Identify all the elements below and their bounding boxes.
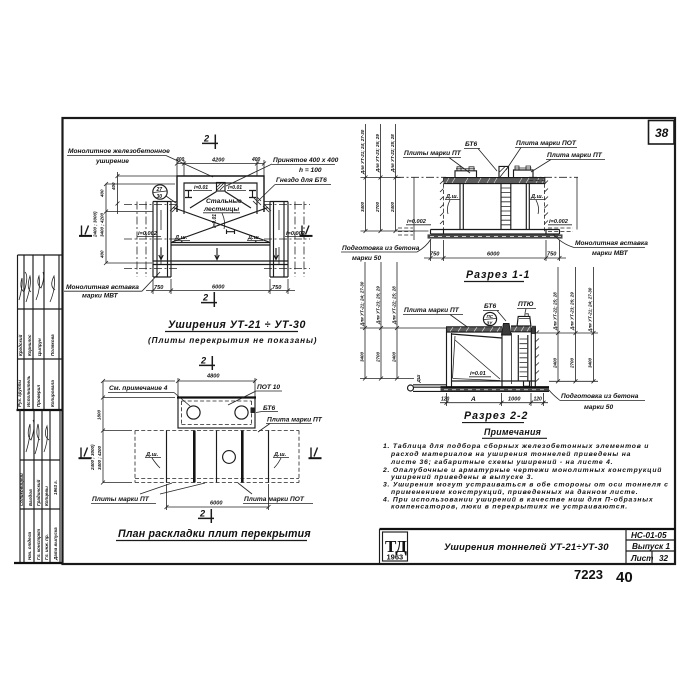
svg-text:ДШ: ДШ xyxy=(416,374,421,383)
svg-text:i=0.01: i=0.01 xyxy=(470,371,486,377)
svg-text:Плита марки ПТ: Плита марки ПТ xyxy=(547,152,603,159)
svg-text:Принятое 400 х 400: Принятое 400 х 400 xyxy=(273,157,339,164)
svg-text:Рук. группы: Рук. группы xyxy=(17,380,22,407)
svg-text:Гл. инж. пр.: Гл. инж. пр. xyxy=(44,534,49,560)
svg-text:Плита марки ПТ: Плита марки ПТ xyxy=(267,417,323,424)
svg-text:750: 750 xyxy=(154,285,164,291)
svg-text:38: 38 xyxy=(655,126,669,140)
svg-text:3400: 3400 xyxy=(588,357,593,368)
svg-text:400: 400 xyxy=(100,189,105,198)
svg-text:ЗУ: ЗУ xyxy=(487,321,494,326)
svg-text:лестницы: лестницы xyxy=(203,206,240,213)
svg-text:4. При использовании уширени: 4. При использовании уширений в качестве… xyxy=(382,496,654,504)
svg-text:Подготовка из бетона: Подготовка из бетона xyxy=(342,244,420,252)
svg-text:6000: 6000 xyxy=(210,501,223,507)
svg-text:1. Таблица для подбора сбор: 1. Таблица для подбора сборных железобет… xyxy=(383,442,649,450)
svg-text:Уширения УТ-21 ÷ УТ-30: Уширения УТ-21 ÷ УТ-30 xyxy=(168,319,306,331)
svg-text:БТ6: БТ6 xyxy=(465,141,477,148)
svg-text:Полякова: Полякова xyxy=(50,334,55,356)
svg-text:марки 50: марки 50 xyxy=(584,404,613,411)
svg-text:Соликовицкий: Соликовицкий xyxy=(18,473,24,506)
svg-text:марки МВТ: марки МВТ xyxy=(82,293,119,300)
svg-text:32: 32 xyxy=(659,554,669,563)
svg-text:ПС: ПС xyxy=(487,314,494,319)
svg-text:БТ6: БТ6 xyxy=(263,405,275,412)
svg-text:Плита марки ПТ: Плита марки ПТ xyxy=(404,307,460,314)
svg-text:Для УТ-21; 24; 27-30: Для УТ-21; 24; 27-30 xyxy=(588,287,593,333)
svg-text:Разрез 1-1: Разрез 1-1 xyxy=(466,269,530,281)
svg-text:См. примечание 4: См. примечание 4 xyxy=(109,385,168,392)
svg-text:1963 г.: 1963 г. xyxy=(53,480,58,495)
svg-text:4800: 4800 xyxy=(206,374,220,380)
svg-text:марки МВТ: марки МВТ xyxy=(592,250,629,257)
svg-text:расход материалов на уширен: расход материалов на уширения тоннелей п… xyxy=(390,450,631,458)
svg-text:Градинский: Градинский xyxy=(35,479,41,506)
svg-text:i=0.002: i=0.002 xyxy=(549,219,569,225)
svg-text:400: 400 xyxy=(111,182,116,191)
svg-text:1963: 1963 xyxy=(387,553,404,562)
svg-text:3400: 3400 xyxy=(360,201,365,212)
svg-text:Нач. отдела: Нач. отдела xyxy=(27,531,32,560)
svg-text:ПОТ 10: ПОТ 10 xyxy=(257,384,280,391)
svg-text:Для УТ-23; 26; 29: Для УТ-23; 26; 29 xyxy=(570,292,575,331)
svg-text:Разрез 2-2: Разрез 2-2 xyxy=(464,410,528,422)
svg-text:Для УТ-22; 25; 28: Для УТ-22; 25; 28 xyxy=(390,134,395,173)
svg-text:Выпуск 1: Выпуск 1 xyxy=(632,542,670,551)
svg-text:компенсаторов, люки в перек: компенсаторов, люки в перекрытиях не уст… xyxy=(391,504,628,511)
svg-text:1000: 1000 xyxy=(508,397,521,403)
svg-text:Балдов: Балдов xyxy=(28,489,33,506)
svg-text:Для УТ-22; 25; 28: Для УТ-22; 25; 28 xyxy=(392,286,397,325)
svg-text:750: 750 xyxy=(430,252,440,258)
svg-text:2400: 2400 xyxy=(392,351,397,363)
svg-text:Монолитная вставка: Монолитная вставка xyxy=(66,284,139,291)
svg-text:2: 2 xyxy=(202,293,209,303)
svg-text:750: 750 xyxy=(547,252,557,258)
svg-text:БТ6: БТ6 xyxy=(484,303,496,310)
svg-text:3400 ; 4200: 3400 ; 4200 xyxy=(97,445,102,470)
svg-text:2400: 2400 xyxy=(553,357,558,369)
svg-text:Кродский: Кродский xyxy=(17,334,23,356)
svg-text:h = 100: h = 100 xyxy=(299,167,322,174)
svg-text:400: 400 xyxy=(100,250,105,259)
svg-text:2: 2 xyxy=(199,509,206,519)
svg-text:марки 50: марки 50 xyxy=(352,255,381,262)
svg-text:6000: 6000 xyxy=(212,285,225,291)
svg-text:Проверил: Проверил xyxy=(36,385,41,407)
svg-text:уширение: уширение xyxy=(95,158,129,165)
svg-text:400: 400 xyxy=(175,157,185,163)
svg-text:2400 ; 3000): 2400 ; 3000) xyxy=(90,444,95,471)
svg-text:Плиты марки ПТ: Плиты марки ПТ xyxy=(92,496,150,503)
svg-text:Примечания: Примечания xyxy=(484,427,542,437)
svg-text:30: 30 xyxy=(157,194,163,200)
svg-text:применением конструкций, при: применением конструкций, приведенных на … xyxy=(391,488,638,496)
svg-text:120: 120 xyxy=(441,397,450,403)
svg-text:2400: 2400 xyxy=(390,201,395,213)
svg-text:3. Уширения могут устраивать: 3. Уширения могут устраиваться в обе сто… xyxy=(383,481,669,489)
svg-text:Плита марки ПОТ: Плита марки ПОТ xyxy=(244,496,305,503)
svg-text:40: 40 xyxy=(616,569,633,586)
svg-text:Лист: Лист xyxy=(630,554,653,563)
svg-text:2: 2 xyxy=(203,134,210,144)
svg-text:400: 400 xyxy=(251,157,261,163)
svg-text:750: 750 xyxy=(272,285,282,291)
svg-text:Гнездо для БТ6: Гнездо для БТ6 xyxy=(276,176,327,184)
svg-text:Монолитная вставка: Монолитная вставка xyxy=(575,240,648,247)
svg-text:2700: 2700 xyxy=(376,351,381,363)
svg-text:Цыпрун: Цыпрун xyxy=(37,338,42,356)
svg-text:уширений приведены в выпуск: уширений приведены в выпуске 3. xyxy=(390,473,534,481)
svg-text:Дата выпуска: Дата выпуска xyxy=(53,527,58,561)
svg-text:Корнилос: Корнилос xyxy=(27,334,32,356)
svg-text:7223: 7223 xyxy=(574,567,603,582)
svg-text:2700: 2700 xyxy=(570,357,575,369)
svg-text:Подготовка из бетона: Подготовка из бетона xyxy=(561,392,639,400)
svg-text:6000: 6000 xyxy=(487,252,500,258)
svg-text:3400: 3400 xyxy=(360,351,365,362)
svg-text:2400 ; 3000): 2400 ; 3000) xyxy=(93,211,98,238)
svg-text:(Плиты перекрытия не показа: (Плиты перекрытия не показаны) xyxy=(148,336,317,345)
svg-text:Копцевы: Копцевы xyxy=(44,486,49,506)
svg-text:2. Опалубочные и арматурные: 2. Опалубочные и арматурные чертежи моно… xyxy=(382,466,662,474)
svg-text:План раскладки плит перекры: План раскладки плит перекрытия xyxy=(118,528,311,540)
svg-text:i=0.002: i=0.002 xyxy=(407,219,427,225)
svg-text:Монолитное железобетонное: Монолитное железобетонное xyxy=(68,147,170,155)
svg-text:Для УТ-23; 26; 29: Для УТ-23; 26; 29 xyxy=(376,286,381,325)
svg-text:Уширения тоннелей УТ-21÷УТ-3: Уширения тоннелей УТ-21÷УТ-30 xyxy=(444,542,609,553)
svg-text:Исполнитель: Исполнитель xyxy=(26,375,31,407)
svg-text:2: 2 xyxy=(200,356,207,366)
svg-text:Для УТ-21; 24; 27-30: Для УТ-21; 24; 27-30 xyxy=(360,281,365,327)
svg-text:Копировала: Копировала xyxy=(50,380,55,407)
svg-text:НС-01-05: НС-01-05 xyxy=(631,531,667,540)
svg-text:листе 36; габаритные схемы: листе 36; габаритные схемы уширений - на… xyxy=(390,458,613,466)
svg-text:Для УТ-21; 24; 27-30: Для УТ-21; 24; 27-30 xyxy=(360,129,365,175)
svg-text:ПТЮ: ПТЮ xyxy=(518,301,534,308)
svg-text:Плита марки ПОТ: Плита марки ПОТ xyxy=(516,140,577,147)
svg-text:2700: 2700 xyxy=(375,201,380,213)
svg-text:Для УТ-22; 25; 28: Для УТ-22; 25; 28 xyxy=(553,292,558,331)
svg-text:4200: 4200 xyxy=(211,158,225,164)
svg-text:1800: 1800 xyxy=(97,409,102,420)
svg-text:120: 120 xyxy=(534,397,543,403)
svg-text:27: 27 xyxy=(156,187,163,193)
svg-text:А: А xyxy=(470,396,476,403)
svg-text:Плиты марки ПТ: Плиты марки ПТ xyxy=(404,150,462,157)
svg-text:Для УТ-23; 26; 29: Для УТ-23; 26; 29 xyxy=(375,134,380,173)
svg-text:3400 ; 4200: 3400 ; 4200 xyxy=(100,212,105,237)
svg-text:Гл. констркт: Гл. констркт xyxy=(36,529,41,560)
